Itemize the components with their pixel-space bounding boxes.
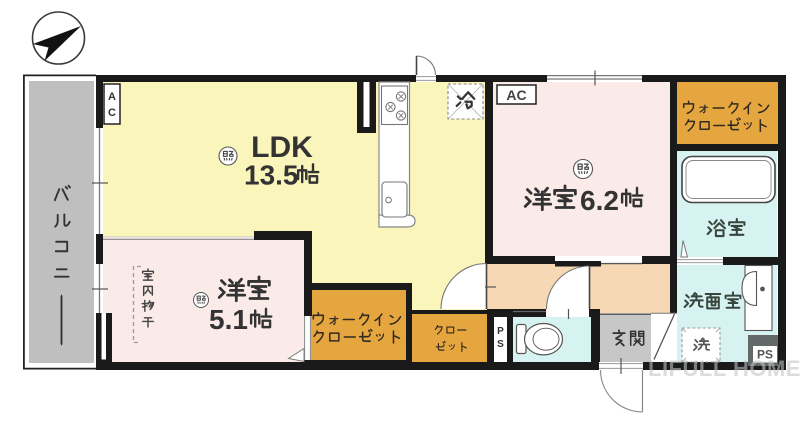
svg-text:A: A: [108, 91, 116, 103]
svg-text:6.2: 6.2: [580, 185, 619, 216]
svg-text:5.1: 5.1: [209, 304, 248, 335]
svg-text:AC: AC: [506, 87, 526, 103]
svg-text:S: S: [497, 339, 504, 350]
svg-text:P: P: [497, 326, 504, 337]
svg-text:13.5: 13.5: [244, 160, 299, 191]
svg-text:C: C: [108, 107, 116, 119]
svg-text:LIFULL HOME'S: LIFULL HOME'S: [648, 356, 800, 381]
